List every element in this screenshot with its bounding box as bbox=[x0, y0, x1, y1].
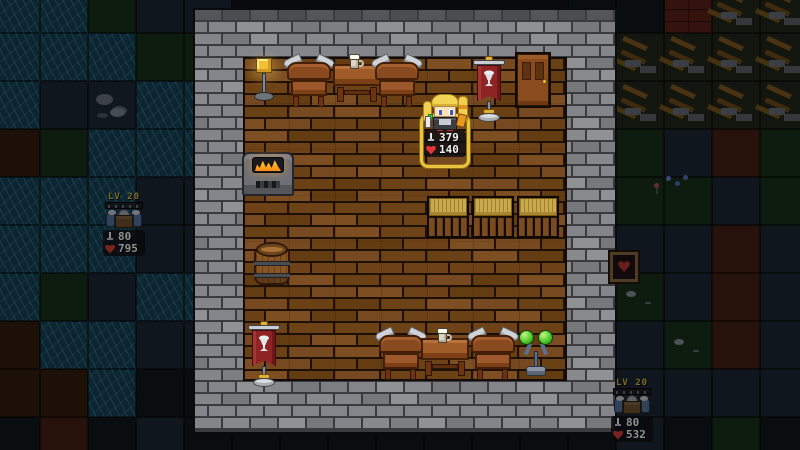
wall-brick bbox=[587, 82, 613, 92]
tile-grass-dark[interactable] bbox=[616, 129, 664, 177]
tile-lumber-pile[interactable] bbox=[712, 81, 760, 129]
tile-stone-dark[interactable] bbox=[760, 369, 800, 417]
floor-brick bbox=[450, 263, 494, 273]
wall-brick bbox=[195, 130, 221, 140]
tile-lumber-pile[interactable] bbox=[712, 0, 760, 33]
floor-brick bbox=[496, 287, 540, 297]
floor-brick bbox=[245, 287, 264, 297]
barrel-lid bbox=[256, 242, 288, 257]
tile-stone-dark[interactable] bbox=[712, 369, 760, 417]
wall-brick bbox=[195, 310, 207, 320]
tile-stone-dark[interactable] bbox=[664, 129, 712, 177]
tile-grass-dark[interactable] bbox=[88, 0, 136, 33]
wall-brick bbox=[517, 382, 543, 392]
wall-brick bbox=[559, 10, 585, 20]
tile-grass-dark[interactable] bbox=[712, 417, 760, 450]
wall-brick bbox=[419, 418, 445, 428]
wall-brick bbox=[251, 418, 277, 428]
unit-stat-plate: 379 140 bbox=[424, 131, 466, 157]
tile-water[interactable] bbox=[40, 321, 88, 369]
wall-brick bbox=[461, 406, 487, 416]
wall-brick bbox=[601, 94, 615, 104]
tile-water[interactable] bbox=[136, 273, 184, 321]
wall-brick bbox=[335, 34, 361, 44]
tile-water[interactable] bbox=[0, 33, 40, 81]
wall-brick bbox=[223, 34, 249, 44]
tile-clay[interactable] bbox=[712, 225, 760, 273]
chair-leg bbox=[477, 369, 483, 380]
wall-brick bbox=[489, 22, 515, 32]
wall-brick bbox=[447, 10, 473, 20]
blue-flower-icon bbox=[666, 176, 671, 181]
tile-lumber-pile[interactable] bbox=[664, 33, 712, 81]
game-viewport: 379 140 LV 20 80 795 LV 20 80 532 bbox=[0, 0, 800, 450]
hay-block bbox=[519, 198, 557, 216]
health-heart-icon bbox=[105, 245, 115, 254]
tile-stone-dark[interactable] bbox=[664, 225, 712, 273]
health-value: 140 bbox=[439, 144, 459, 156]
wall-brick bbox=[559, 34, 585, 44]
tile-water[interactable] bbox=[0, 81, 40, 129]
tile-stone-dark[interactable] bbox=[616, 321, 664, 369]
floor-brick bbox=[312, 191, 356, 201]
tile-stone-dark[interactable] bbox=[40, 81, 88, 129]
dwarf-unit-sprite bbox=[616, 395, 648, 417]
wall-brick bbox=[209, 214, 235, 224]
tile-dark[interactable] bbox=[616, 0, 664, 33]
wall-brick bbox=[209, 334, 235, 344]
wall-brick bbox=[475, 10, 501, 20]
floor-brick bbox=[542, 143, 565, 153]
wall-brick bbox=[209, 406, 235, 416]
eye bbox=[449, 109, 453, 115]
white-vial-icon bbox=[425, 116, 431, 128]
unit-body bbox=[115, 215, 133, 228]
floor-brick bbox=[289, 323, 333, 333]
floor-brick bbox=[427, 59, 471, 69]
wall-brick bbox=[601, 22, 615, 32]
tile-lumber-pile[interactable] bbox=[760, 33, 800, 81]
shield-icon bbox=[641, 399, 650, 413]
table-leg bbox=[370, 87, 377, 102]
wall-brick bbox=[279, 34, 305, 44]
floor-brick bbox=[245, 299, 287, 309]
wall-brick bbox=[601, 166, 615, 176]
wall-brick bbox=[419, 394, 445, 404]
floor-brick bbox=[358, 119, 402, 129]
wall-brick bbox=[293, 406, 319, 416]
floor-brick bbox=[289, 227, 333, 237]
wall-brick bbox=[195, 202, 221, 212]
tile-grass-pebbles[interactable] bbox=[664, 321, 712, 369]
wall-brick bbox=[461, 22, 487, 32]
tile-grass-dark[interactable] bbox=[664, 177, 712, 225]
health-heart-icon bbox=[613, 431, 623, 440]
floor-brick bbox=[381, 251, 425, 261]
tile-water[interactable] bbox=[40, 33, 88, 81]
wall-brick bbox=[503, 34, 529, 44]
wall-brick bbox=[573, 214, 599, 224]
tile-grass-dark[interactable] bbox=[40, 273, 88, 321]
tile-clay[interactable] bbox=[712, 321, 760, 369]
tile-grass-dark[interactable] bbox=[136, 33, 184, 81]
wall-brick bbox=[405, 406, 431, 416]
wall-brick bbox=[265, 22, 291, 32]
unit-level-label: LV 20 bbox=[100, 192, 148, 202]
wall-brick bbox=[545, 22, 571, 32]
floor-brick bbox=[473, 155, 517, 165]
floor-brick bbox=[473, 299, 517, 309]
door-panel bbox=[535, 62, 544, 80]
stand-pole bbox=[534, 351, 538, 367]
floor-brick bbox=[312, 215, 356, 225]
enemy-unit[interactable]: LV 20 80 532 bbox=[608, 378, 656, 442]
wall-brick bbox=[195, 82, 221, 92]
floor-brick bbox=[381, 227, 425, 237]
tile-water[interactable] bbox=[0, 177, 40, 225]
floor-brick bbox=[496, 239, 540, 249]
unit-name-bar bbox=[613, 388, 651, 395]
wall-brick bbox=[195, 154, 221, 164]
floor-brick bbox=[335, 203, 379, 213]
tile-lumber-pile[interactable] bbox=[760, 81, 800, 129]
tile-water[interactable] bbox=[0, 0, 40, 33]
wall-brick bbox=[251, 394, 277, 404]
chair-leg bbox=[318, 96, 324, 107]
wall-brick bbox=[573, 46, 599, 56]
wall-brick bbox=[251, 34, 277, 44]
health-value: 532 bbox=[626, 429, 646, 441]
tile-stone-dark[interactable] bbox=[136, 321, 184, 369]
wall-brick bbox=[195, 226, 221, 236]
wall-brick bbox=[573, 286, 599, 296]
tile-stone-dark[interactable] bbox=[712, 177, 760, 225]
wall-brick bbox=[489, 46, 515, 56]
wall-brick bbox=[195, 406, 207, 416]
floor-brick bbox=[542, 167, 565, 177]
tile-water[interactable] bbox=[136, 81, 184, 129]
tile-stone-dark[interactable] bbox=[136, 0, 184, 33]
wall-brick bbox=[377, 406, 403, 416]
tile-dark[interactable] bbox=[88, 417, 136, 450]
floor-brick bbox=[266, 287, 310, 297]
tile-stone-dark[interactable] bbox=[760, 273, 800, 321]
floor-brick bbox=[427, 299, 471, 309]
axe-blade-icon bbox=[640, 396, 648, 401]
tile-stone-dark[interactable] bbox=[664, 369, 712, 417]
banner-bar bbox=[248, 325, 280, 330]
wall-brick bbox=[321, 46, 347, 56]
wall-brick bbox=[195, 286, 207, 296]
floor-brick bbox=[473, 131, 517, 141]
wall-brick bbox=[601, 70, 615, 80]
wall-brick bbox=[195, 178, 221, 188]
lamp-light-cube bbox=[256, 58, 272, 73]
wall-brick bbox=[349, 382, 375, 392]
floor-brick bbox=[358, 143, 402, 153]
floor-brick bbox=[427, 275, 471, 285]
chair-backrest bbox=[471, 335, 515, 353]
player-unit[interactable]: 379 140 bbox=[420, 94, 470, 172]
banner-base-plate bbox=[478, 113, 500, 122]
tile-grass-dark[interactable] bbox=[40, 129, 88, 177]
floor-brick bbox=[266, 119, 310, 129]
tile-lumber-pile[interactable] bbox=[616, 81, 664, 129]
floor-brick bbox=[473, 275, 517, 285]
wall-brick bbox=[601, 142, 615, 152]
floor-brick bbox=[404, 239, 448, 249]
wall-brick bbox=[321, 22, 347, 32]
wall-brick bbox=[209, 118, 235, 128]
wall-brick bbox=[237, 22, 263, 32]
wall-brick bbox=[223, 10, 249, 20]
tile-lumber-pile[interactable] bbox=[616, 33, 664, 81]
tile-stone-dark[interactable] bbox=[88, 273, 136, 321]
unit-stat-plate: 80 795 bbox=[103, 230, 145, 256]
wall-brick bbox=[195, 106, 221, 116]
floor-brick bbox=[381, 107, 425, 117]
wall-brick bbox=[573, 358, 599, 368]
tile-dark[interactable] bbox=[0, 417, 40, 450]
attack-sword-icon bbox=[105, 232, 115, 242]
wall-brick bbox=[573, 262, 599, 272]
tile-clay[interactable] bbox=[40, 417, 88, 450]
wall-brick bbox=[209, 142, 235, 152]
wall-brick bbox=[195, 370, 221, 380]
banner-bar bbox=[473, 60, 505, 65]
floor-brick bbox=[542, 311, 565, 321]
shield-icon bbox=[614, 399, 623, 413]
floor-brick bbox=[450, 311, 494, 321]
tile-dirt[interactable] bbox=[0, 321, 40, 369]
health-value: 795 bbox=[118, 243, 138, 255]
wall-brick bbox=[433, 406, 459, 416]
tile-water[interactable] bbox=[88, 369, 136, 417]
wall-brick bbox=[587, 34, 613, 44]
wall-brick bbox=[587, 202, 613, 212]
tile-clay[interactable] bbox=[712, 273, 760, 321]
dwarf-unit-sprite bbox=[108, 209, 140, 231]
wall-brick bbox=[363, 34, 389, 44]
wall-brick bbox=[209, 382, 235, 392]
attack-sword-icon bbox=[613, 418, 623, 428]
floor-brick bbox=[542, 239, 565, 249]
tile-water[interactable] bbox=[136, 129, 184, 177]
tile-stone-dark[interactable] bbox=[760, 225, 800, 273]
floor-brick bbox=[450, 287, 494, 297]
floor-brick bbox=[266, 311, 310, 321]
eye bbox=[438, 109, 442, 115]
floor-brick bbox=[542, 263, 565, 273]
chair-backrest bbox=[287, 62, 331, 80]
wall-brick bbox=[321, 382, 347, 392]
floor-brick bbox=[358, 239, 402, 249]
floor-brick bbox=[519, 107, 563, 117]
wall-brick bbox=[195, 118, 207, 128]
wall-brick bbox=[279, 394, 305, 404]
wall-brick bbox=[503, 394, 529, 404]
wall-brick bbox=[195, 70, 207, 80]
floor-brick bbox=[245, 215, 264, 225]
wall-brick bbox=[377, 46, 403, 56]
tile-lumber-pile[interactable] bbox=[712, 33, 760, 81]
floor-brick bbox=[381, 131, 425, 141]
wall-brick bbox=[489, 382, 515, 392]
flower-stem bbox=[656, 188, 658, 194]
tile-rocks[interactable] bbox=[88, 81, 136, 129]
wall-brick bbox=[377, 22, 403, 32]
floor-brick bbox=[496, 143, 540, 153]
wall-brick bbox=[447, 34, 473, 44]
wall-brick bbox=[349, 22, 375, 32]
wall-brick bbox=[573, 406, 599, 416]
wall-brick bbox=[195, 418, 221, 428]
wall-brick bbox=[293, 22, 319, 32]
wall-brick bbox=[195, 22, 207, 32]
floor-brick bbox=[381, 155, 425, 165]
tile-water[interactable] bbox=[40, 0, 88, 33]
wall-brick bbox=[195, 334, 207, 344]
wall-brick bbox=[195, 214, 207, 224]
wall-brick bbox=[587, 178, 613, 188]
floor-brick bbox=[381, 203, 425, 213]
wall-brick bbox=[405, 22, 431, 32]
floor-brick bbox=[358, 191, 402, 201]
floor-brick bbox=[245, 131, 287, 141]
wall-brick bbox=[195, 298, 221, 308]
wall-brick bbox=[195, 46, 207, 56]
tile-dark[interactable] bbox=[760, 417, 800, 450]
tile-red-bricks[interactable] bbox=[664, 0, 712, 33]
tile-dirt[interactable] bbox=[0, 369, 40, 417]
tile-lumber-pile[interactable] bbox=[760, 0, 800, 33]
wall-brick bbox=[587, 154, 613, 164]
floor-brick bbox=[335, 131, 379, 141]
floor-brick bbox=[335, 371, 379, 379]
wall-brick bbox=[573, 334, 599, 344]
wall-brick bbox=[601, 334, 615, 344]
wall-brick bbox=[517, 406, 543, 416]
stand-base bbox=[526, 366, 546, 376]
floor-brick bbox=[312, 335, 356, 345]
wall-brick bbox=[223, 418, 249, 428]
tile-dirt[interactable] bbox=[0, 129, 40, 177]
wall-brick bbox=[195, 346, 221, 356]
floor-brick bbox=[335, 299, 379, 309]
wall-brick bbox=[587, 130, 613, 140]
beer-mug bbox=[438, 328, 452, 344]
wall-brick bbox=[573, 310, 599, 320]
wall-brick bbox=[363, 394, 389, 404]
wall-brick bbox=[195, 262, 207, 272]
floor-brick bbox=[245, 227, 287, 237]
wall-brick bbox=[587, 322, 613, 332]
wall-brick bbox=[209, 286, 235, 296]
wall-brick bbox=[475, 394, 501, 404]
enemy-unit[interactable]: LV 20 80 795 bbox=[100, 192, 148, 256]
door-panel bbox=[522, 62, 531, 80]
tile-water[interactable] bbox=[40, 177, 88, 225]
wall-brick bbox=[545, 382, 571, 392]
floor-brick bbox=[312, 143, 356, 153]
wall-brick bbox=[573, 70, 599, 80]
floor-brick bbox=[312, 287, 356, 297]
lamp-base bbox=[254, 92, 274, 101]
wall-brick bbox=[545, 406, 571, 416]
unit-name-bar bbox=[105, 202, 143, 209]
tile-grass-dark[interactable] bbox=[760, 129, 800, 177]
floor-brick bbox=[289, 131, 333, 141]
floor-brick bbox=[381, 179, 425, 189]
wall-brick bbox=[307, 34, 333, 44]
tile-stone-dark[interactable] bbox=[136, 417, 184, 450]
tile-stone-dark[interactable] bbox=[760, 321, 800, 369]
wall-brick bbox=[209, 94, 235, 104]
wall-brick bbox=[195, 166, 207, 176]
tile-water[interactable] bbox=[0, 225, 40, 273]
tile-water[interactable] bbox=[88, 129, 136, 177]
beer-mug bbox=[350, 54, 364, 70]
tile-lumber-pile[interactable] bbox=[664, 81, 712, 129]
floor-brick bbox=[358, 311, 402, 321]
wall-brick bbox=[419, 10, 445, 20]
wall-brick bbox=[531, 10, 557, 20]
tile-water[interactable] bbox=[88, 321, 136, 369]
wall-brick bbox=[601, 358, 615, 368]
hay-block bbox=[429, 198, 467, 216]
wall-brick bbox=[587, 298, 613, 308]
tile-dark[interactable] bbox=[136, 369, 184, 417]
floor-brick bbox=[289, 371, 333, 379]
tile-water[interactable] bbox=[40, 225, 88, 273]
unit-body bbox=[623, 401, 641, 414]
chair-leg bbox=[502, 369, 508, 380]
wall-brick bbox=[489, 406, 515, 416]
door-knob bbox=[542, 79, 547, 84]
wall-brick bbox=[475, 34, 501, 44]
tile-grass-dark[interactable] bbox=[760, 177, 800, 225]
wall-brick bbox=[209, 190, 235, 200]
wall-brick bbox=[587, 226, 613, 236]
wall-brick bbox=[279, 418, 305, 428]
floor-brick bbox=[245, 119, 264, 129]
floor-brick bbox=[289, 155, 333, 165]
mug-handle bbox=[359, 60, 364, 67]
floor-brick bbox=[427, 179, 471, 189]
wall-brick bbox=[195, 274, 221, 284]
tile-water[interactable] bbox=[88, 33, 136, 81]
tile-stone-dark[interactable] bbox=[664, 273, 712, 321]
floor-brick bbox=[496, 263, 540, 273]
wall-brick bbox=[293, 382, 319, 392]
wall-brick bbox=[195, 190, 207, 200]
barrel-band bbox=[254, 273, 290, 278]
wall-brick bbox=[587, 346, 613, 356]
floor-brick bbox=[289, 299, 333, 309]
bed-slats bbox=[474, 218, 512, 236]
tile-water[interactable] bbox=[0, 273, 40, 321]
tile-clay[interactable] bbox=[712, 129, 760, 177]
tile-dirt[interactable] bbox=[40, 369, 88, 417]
chair-seat bbox=[291, 80, 327, 96]
chair-leg bbox=[293, 96, 299, 107]
floor-brick bbox=[427, 83, 471, 93]
wall-brick bbox=[209, 166, 235, 176]
bed-slats bbox=[519, 218, 557, 236]
wall-brick bbox=[209, 262, 235, 272]
wall-brick bbox=[195, 250, 221, 260]
tile-dark[interactable] bbox=[664, 417, 712, 450]
